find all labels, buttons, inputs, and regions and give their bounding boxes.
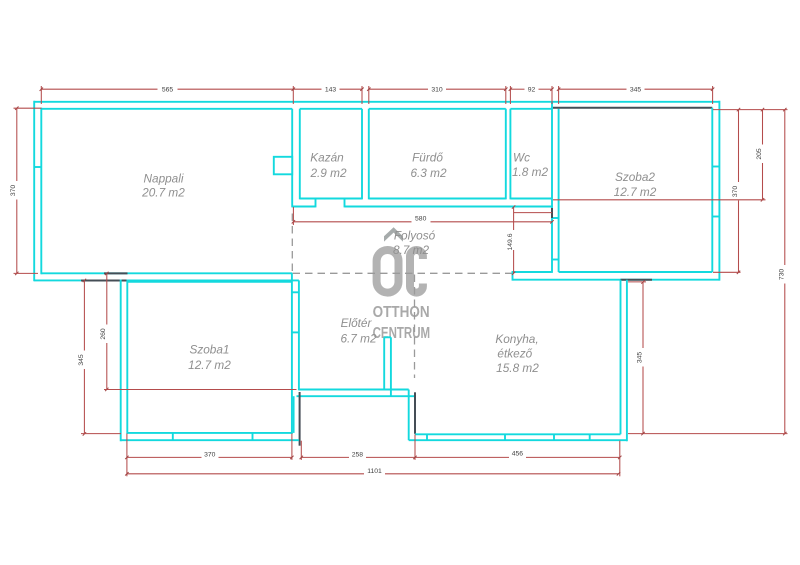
svg-text:1101: 1101	[367, 468, 382, 475]
svg-text:12.7 m2: 12.7 m2	[188, 358, 231, 372]
svg-text:1.8 m2: 1.8 m2	[512, 165, 549, 179]
svg-text:Szoba1: Szoba1	[189, 343, 229, 357]
svg-text:Nappali: Nappali	[143, 172, 183, 186]
svg-text:Konyha,: Konyha,	[495, 332, 538, 346]
svg-text:Wc: Wc	[513, 150, 530, 164]
svg-text:2.9 m2: 2.9 m2	[309, 166, 347, 180]
svg-text:12.7 m2: 12.7 m2	[614, 185, 657, 199]
svg-text:OTTHON: OTTHON	[373, 304, 430, 321]
svg-text:258: 258	[352, 451, 364, 458]
svg-text:205: 205	[756, 148, 763, 160]
svg-text:149.6: 149.6	[507, 233, 514, 250]
svg-text:15.8 m2: 15.8 m2	[496, 361, 539, 375]
svg-text:345: 345	[637, 352, 644, 364]
svg-text:6.3 m2: 6.3 m2	[410, 166, 447, 180]
svg-text:6.7 m2: 6.7 m2	[340, 332, 377, 346]
svg-text:étkező: étkező	[497, 347, 532, 361]
svg-text:565: 565	[162, 87, 174, 94]
svg-text:Szoba2: Szoba2	[615, 170, 655, 184]
svg-text:Előtér: Előtér	[341, 316, 373, 330]
svg-text:Folyosó: Folyosó	[394, 228, 436, 242]
svg-text:143: 143	[325, 87, 337, 94]
svg-text:310: 310	[431, 87, 443, 94]
svg-text:456: 456	[512, 450, 524, 457]
svg-text:92: 92	[528, 87, 536, 94]
svg-text:370: 370	[732, 186, 739, 198]
svg-text:Kazán: Kazán	[310, 150, 344, 164]
svg-text:CENTRUM: CENTRUM	[373, 325, 431, 342]
svg-text:370: 370	[204, 451, 216, 458]
svg-text:Fürdő: Fürdő	[412, 150, 443, 164]
svg-text:260: 260	[100, 328, 107, 340]
svg-text:370: 370	[10, 185, 17, 197]
svg-text:580: 580	[415, 215, 427, 222]
svg-text:20.7 m2: 20.7 m2	[141, 186, 185, 200]
svg-text:8.7 m2: 8.7 m2	[393, 243, 430, 257]
svg-text:345: 345	[630, 87, 642, 94]
svg-text:730: 730	[778, 269, 785, 281]
svg-text:345: 345	[78, 354, 85, 366]
